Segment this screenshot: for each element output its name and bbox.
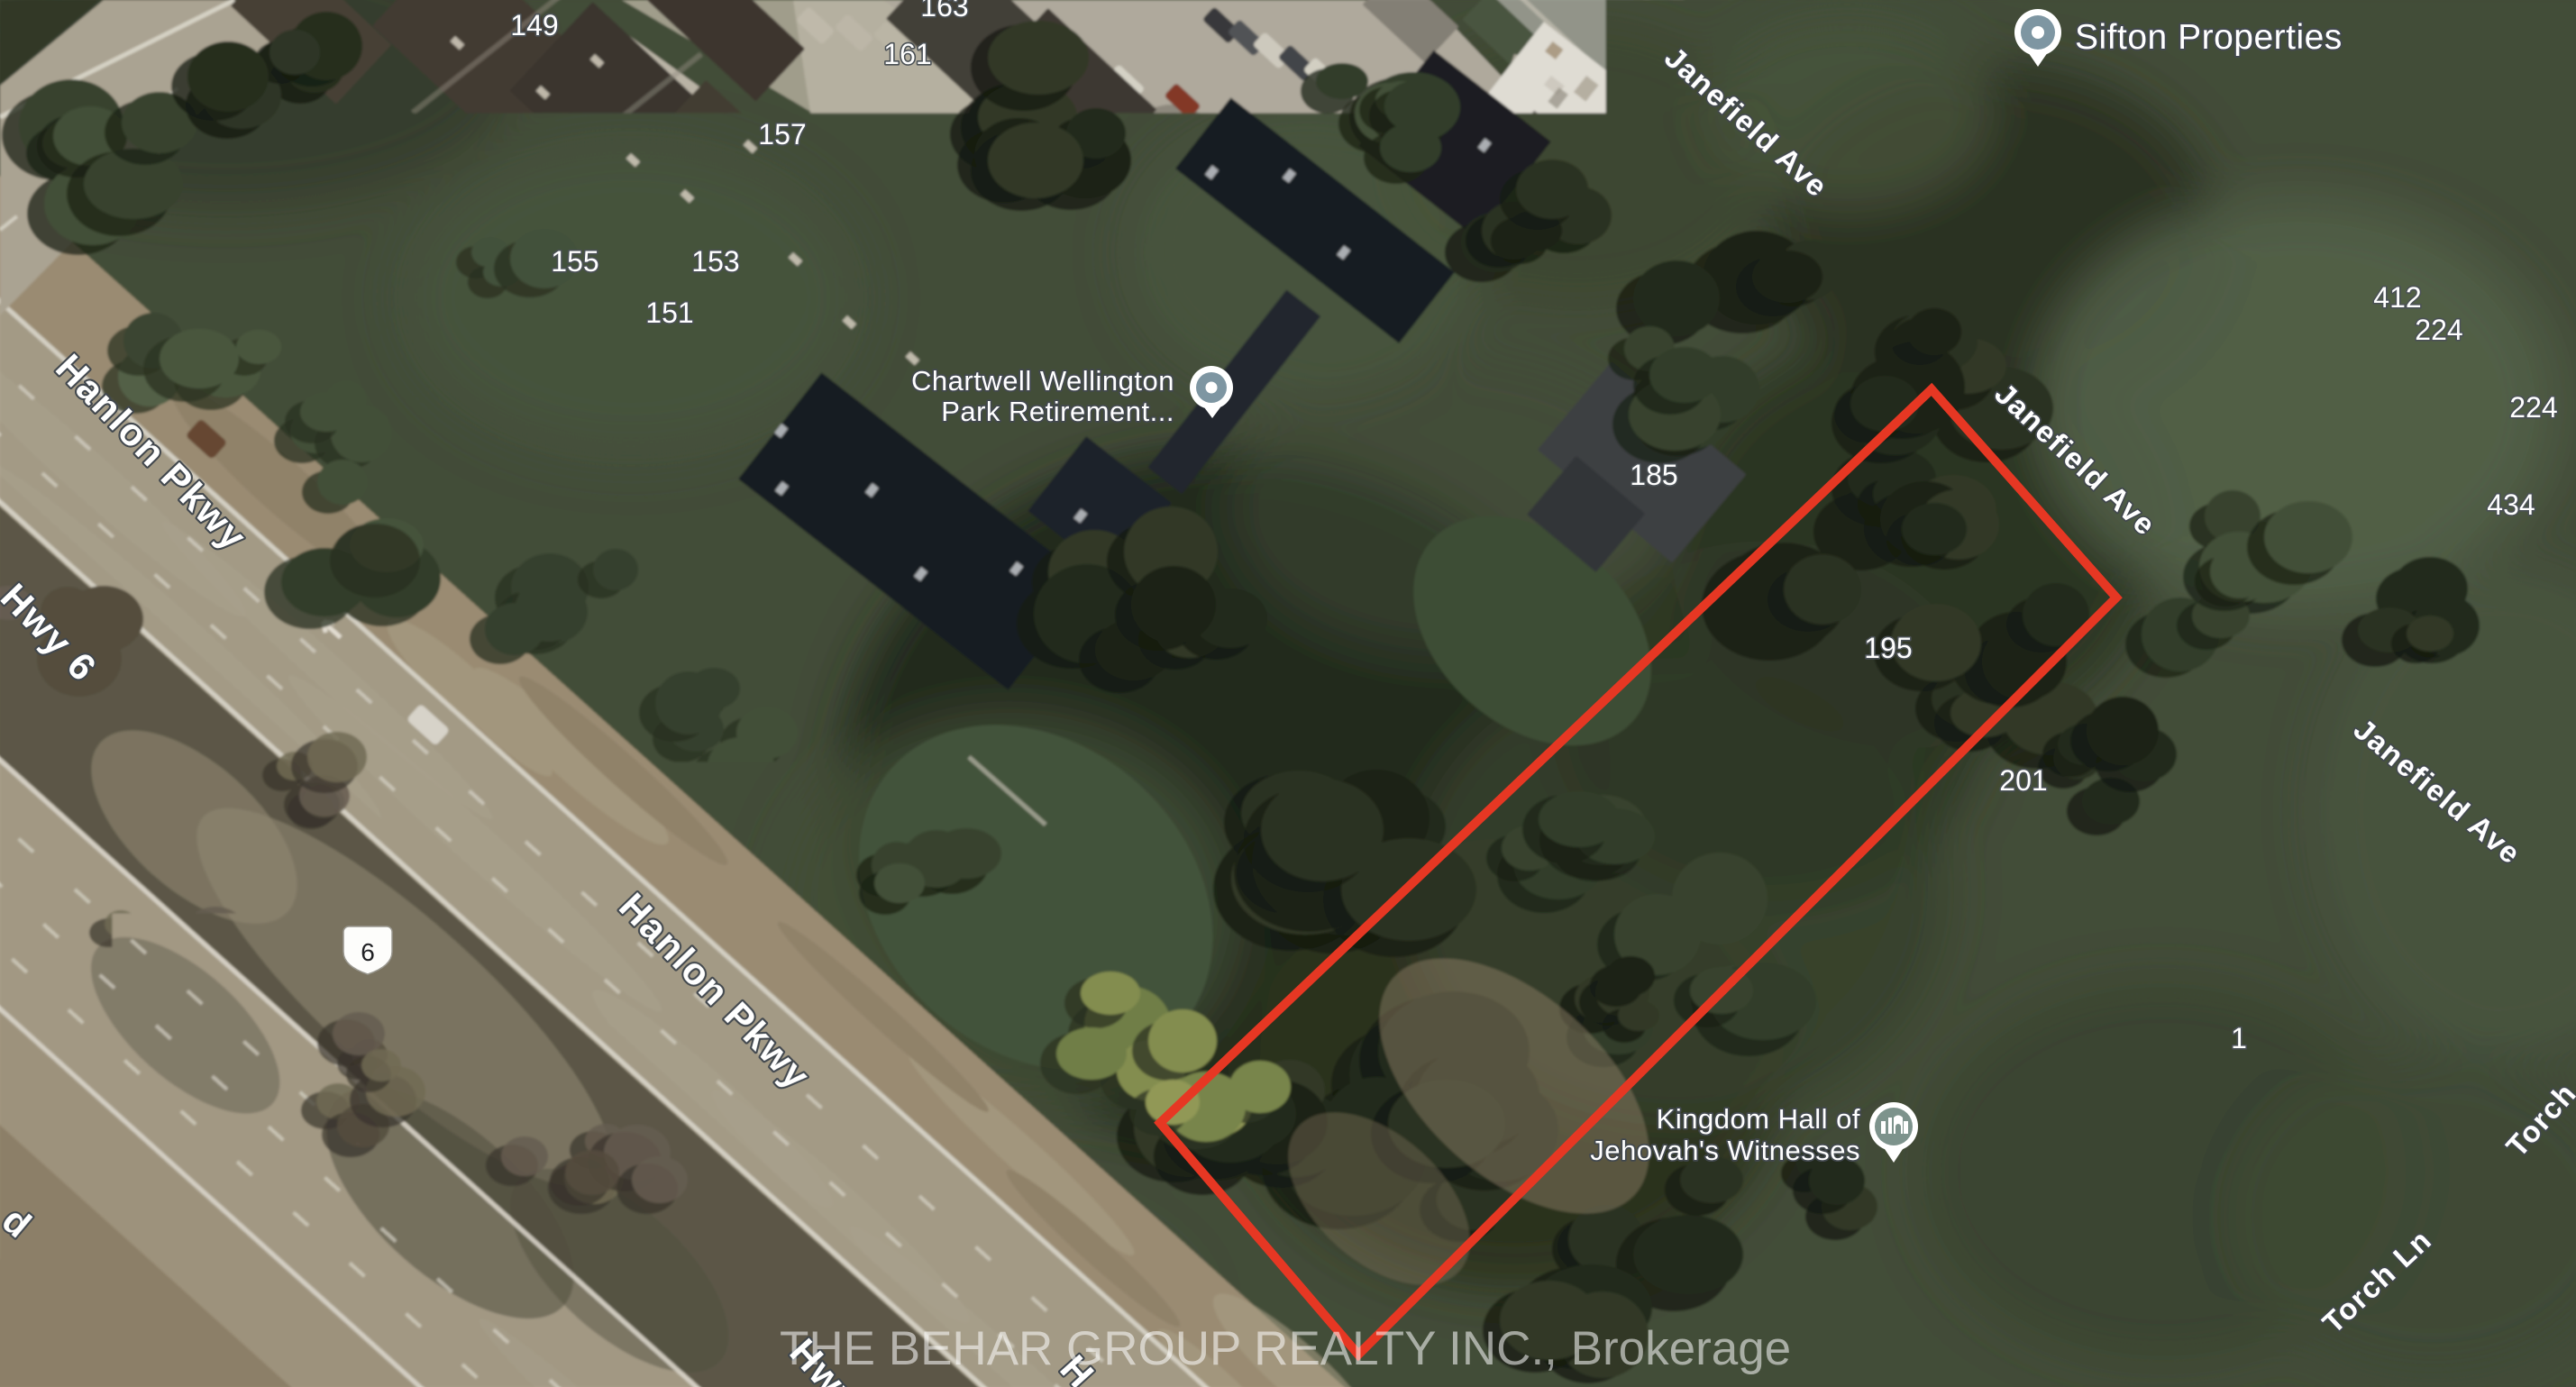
svg-text:153: 153 [691, 245, 739, 278]
svg-text:151: 151 [645, 297, 693, 329]
svg-text:149: 149 [510, 9, 558, 41]
svg-text:155: 155 [551, 245, 598, 278]
svg-text:163: 163 [920, 0, 968, 23]
svg-text:224: 224 [2509, 391, 2557, 424]
svg-text:201: 201 [1999, 764, 2047, 797]
svg-text:Kingdom Hall of: Kingdom Hall of [1657, 1103, 1860, 1135]
svg-text:157: 157 [758, 118, 806, 151]
svg-text:THE BEHAR GROUP REALTY INC., B: THE BEHAR GROUP REALTY INC., Brokerage [780, 1322, 1791, 1375]
svg-text:Jehovah's Witnesses: Jehovah's Witnesses [1590, 1135, 1860, 1166]
svg-text:224: 224 [2415, 314, 2462, 346]
svg-text:195: 195 [1864, 632, 1912, 664]
svg-text:Sifton Properties: Sifton Properties [2075, 18, 2343, 57]
svg-text:161: 161 [883, 38, 931, 70]
svg-text:434: 434 [2487, 488, 2535, 521]
svg-text:412: 412 [2373, 281, 2421, 314]
svg-text:1: 1 [2231, 1022, 2247, 1054]
svg-text:185: 185 [1630, 459, 1677, 491]
svg-text:Park Retirement...: Park Retirement... [941, 396, 1174, 427]
svg-text:6: 6 [361, 938, 375, 966]
svg-text:Chartwell Wellington: Chartwell Wellington [911, 365, 1174, 397]
